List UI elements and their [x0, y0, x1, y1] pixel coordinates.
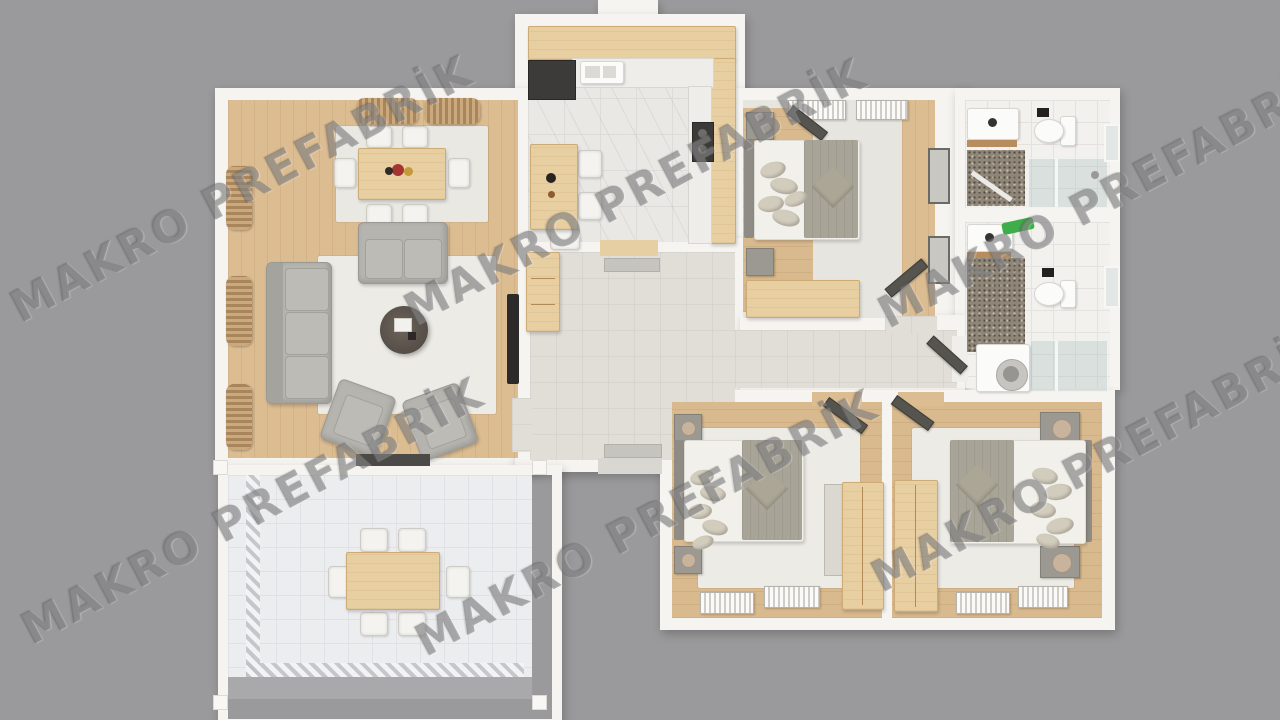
doormat — [604, 444, 662, 458]
glass-panel-edge — [1055, 159, 1058, 207]
bed-headboard — [744, 140, 754, 238]
flower-centerpiece-yellow — [404, 167, 413, 176]
sideboard-line — [531, 304, 555, 305]
window-curtain — [226, 384, 252, 450]
sofa-cushion — [285, 356, 329, 399]
sideboard-line — [531, 278, 555, 279]
sofa-backrest — [267, 263, 283, 403]
terrace-table — [346, 552, 440, 610]
kitchen-chair — [578, 192, 602, 220]
bedroom-2-dresser — [824, 484, 844, 576]
sofa-cushion — [285, 268, 329, 311]
kitchen-hall-doorway — [600, 240, 658, 256]
round-coffee-table — [380, 306, 428, 354]
bed-headboard — [674, 440, 684, 540]
terrace-chair — [398, 528, 426, 552]
table-bowl-dark — [546, 173, 556, 183]
master-doorway — [885, 316, 937, 334]
nightstand-lamp — [681, 553, 696, 568]
living-hall-doorway — [512, 398, 532, 452]
kitchen-chair — [550, 228, 580, 250]
nightstand — [674, 546, 702, 574]
fridge — [528, 60, 576, 100]
kitchen-upper-counter — [528, 26, 736, 60]
terrace-post — [532, 460, 547, 475]
vanity-shelf — [967, 140, 1017, 147]
loveseat-cushion — [365, 239, 403, 279]
bathroom-vanity — [967, 108, 1019, 140]
washing-machine — [976, 344, 1030, 392]
nightstand — [746, 112, 774, 140]
terrace-chair — [360, 612, 388, 636]
toilet-bowl — [1034, 119, 1064, 143]
coffee-table-tray — [394, 318, 412, 332]
faucet — [985, 233, 994, 242]
sofa-cushion — [285, 312, 329, 355]
loveseat-cushion — [404, 239, 442, 279]
terrace-post — [532, 695, 547, 710]
burner — [698, 129, 707, 138]
three-seat-sofa — [266, 262, 332, 404]
terrace-edge-strip — [228, 677, 532, 699]
bathroom-window — [1104, 124, 1120, 162]
loveseat — [358, 222, 448, 284]
terrace-mosaic-border-left — [246, 475, 260, 677]
washer-drum — [1003, 366, 1019, 382]
nightstand-lamp — [681, 421, 696, 436]
dining-chair — [402, 126, 428, 148]
dining-chair — [366, 126, 392, 148]
bedroom-3-wardrobe — [894, 480, 938, 612]
faucet — [988, 118, 997, 127]
shower-floor — [967, 258, 1025, 352]
toilet-bowl — [1034, 282, 1064, 306]
nightstand-lamp — [1052, 553, 1072, 573]
radiator — [856, 100, 908, 120]
terrace-post — [213, 695, 228, 710]
doormat — [604, 258, 660, 272]
terrace-chair — [360, 528, 388, 552]
kitchen-sink — [580, 61, 624, 84]
nightstand — [674, 414, 702, 442]
terrace-post — [213, 460, 228, 475]
armchair-cushion — [416, 397, 468, 450]
radiator — [764, 586, 820, 608]
hall-entrance-doorway — [598, 458, 662, 474]
master-bedroom-wood-right — [902, 100, 935, 318]
toilet-accessory — [1037, 108, 1049, 117]
corridor-floor — [735, 330, 957, 388]
table-decor-brown — [548, 191, 555, 198]
bathroom-window — [1104, 266, 1120, 308]
hall-sideboard — [526, 252, 560, 332]
flower-centerpiece-red — [392, 164, 404, 176]
radiator — [700, 592, 754, 614]
kitchen-chair — [578, 150, 602, 178]
armchair-cushion — [332, 394, 384, 447]
window-curtain — [356, 98, 418, 124]
glass-panel-edge — [1055, 341, 1058, 391]
nightstand-lamp — [1052, 419, 1072, 439]
glass-shower-enclosure — [1030, 340, 1108, 392]
dining-chair — [448, 158, 470, 188]
sink-bowl — [603, 66, 616, 78]
coffee-table-decor — [408, 332, 416, 340]
wall-mirror-frame — [928, 236, 950, 284]
burner — [698, 145, 707, 154]
radiator — [1018, 586, 1068, 608]
bedroom-2-wardrobe — [842, 482, 884, 610]
nightstand — [1040, 546, 1080, 578]
wall-tv — [507, 294, 519, 384]
window-curtain — [226, 166, 252, 230]
wall-mirror-frame — [928, 148, 950, 204]
window-curtain — [226, 276, 252, 346]
breakfast-table — [530, 144, 578, 230]
nightstand — [746, 248, 774, 276]
floor-plan-render: MAKRO PREFABRİK MAKRO PREFABRİK MAKRO PR… — [0, 0, 1280, 720]
dining-chair — [334, 158, 356, 188]
wardrobe-door-line — [862, 487, 863, 605]
radiator — [956, 592, 1010, 614]
toilet-accessory — [1042, 268, 1054, 277]
cooktop — [692, 122, 714, 162]
kitchen-worktop-right — [688, 86, 712, 244]
wardrobe-door-line — [915, 485, 916, 607]
terrace-chair — [398, 612, 426, 636]
terrace-mosaic-border-bottom — [246, 663, 524, 677]
terrace-door-threshold — [356, 454, 430, 466]
glass-shower-enclosure — [1028, 158, 1108, 208]
sink-bowl — [585, 66, 600, 78]
table-decor-dark — [385, 167, 393, 175]
shower-drain — [1091, 171, 1099, 179]
terrace-chair — [446, 566, 470, 598]
master-desk — [746, 280, 860, 318]
window-curtain — [424, 98, 480, 124]
